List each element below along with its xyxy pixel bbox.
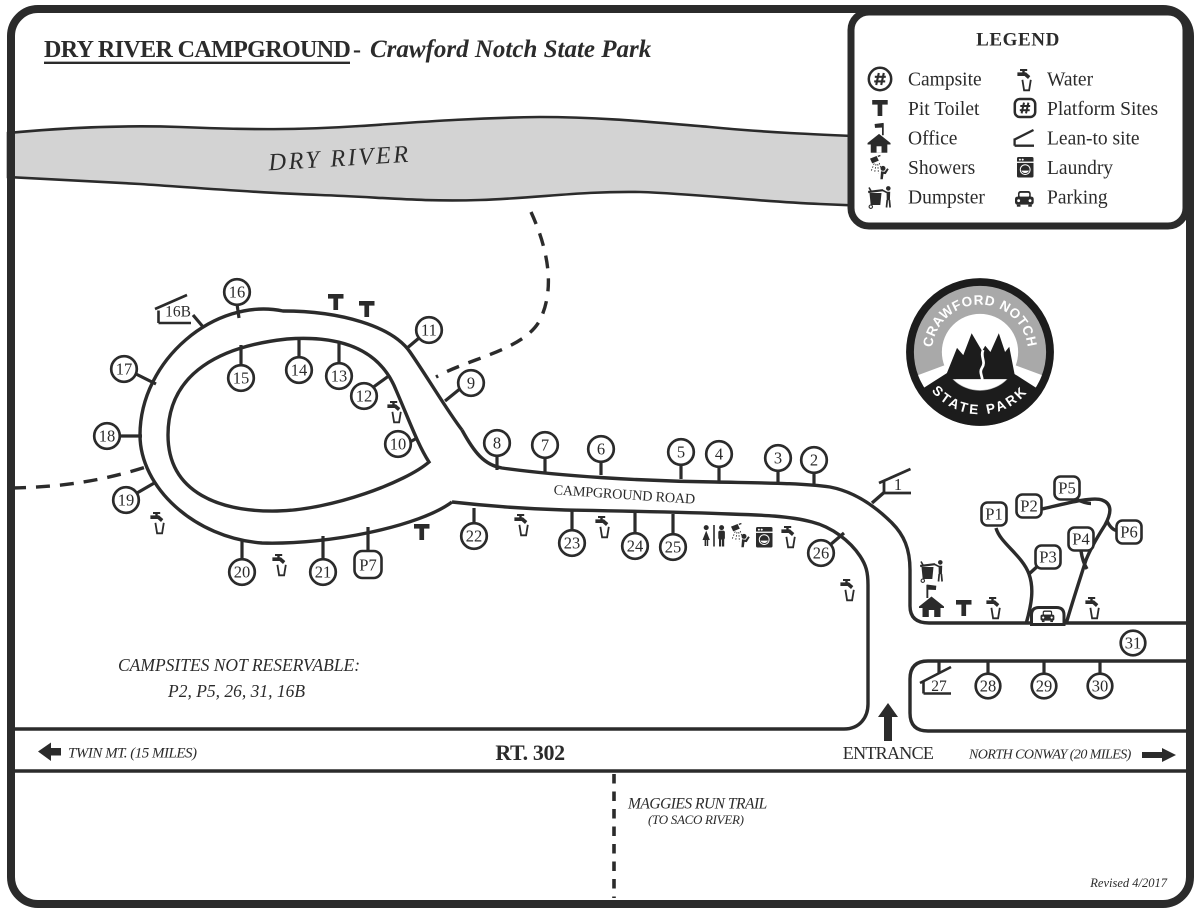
svg-text:27: 27 (931, 678, 947, 695)
svg-text:16: 16 (229, 283, 246, 302)
svg-text:Office: Office (908, 129, 957, 150)
svg-text:P6: P6 (1120, 523, 1137, 542)
svg-text:MAGGIES RUN TRAIL: MAGGIES RUN TRAIL (627, 796, 767, 813)
svg-text:Water: Water (1047, 70, 1094, 91)
svg-text:4: 4 (715, 445, 723, 464)
svg-text:6: 6 (597, 440, 605, 459)
svg-text:Laundry: Laundry (1047, 158, 1113, 179)
svg-text:Revised 4/2017: Revised 4/2017 (1089, 876, 1167, 890)
svg-text:26: 26 (813, 544, 830, 563)
svg-text:(TO SACO RIVER): (TO SACO RIVER) (648, 812, 744, 827)
svg-text:18: 18 (99, 427, 116, 446)
svg-text:P5: P5 (1058, 479, 1075, 498)
svg-text:22: 22 (466, 527, 483, 546)
svg-text:ENTRANCE: ENTRANCE (843, 743, 934, 763)
svg-text:24: 24 (627, 537, 644, 556)
svg-text:17: 17 (116, 360, 133, 379)
svg-text:Pit Toilet: Pit Toilet (908, 99, 980, 120)
svg-text:15: 15 (233, 369, 250, 388)
svg-text:12: 12 (356, 387, 373, 406)
svg-text:DRY RIVER CAMPGROUND: DRY RIVER CAMPGROUND (44, 37, 351, 63)
svg-text:P4: P4 (1072, 530, 1089, 549)
svg-text:-: - (353, 37, 361, 63)
svg-text:8: 8 (493, 434, 501, 453)
svg-text:29: 29 (1036, 677, 1053, 696)
svg-text:11: 11 (421, 321, 437, 340)
svg-text:14: 14 (291, 361, 308, 380)
svg-text:9: 9 (467, 374, 475, 393)
svg-text:5: 5 (677, 443, 685, 462)
svg-text:10: 10 (390, 435, 407, 454)
svg-text:P2: P2 (1020, 497, 1037, 516)
svg-text:Parking: Parking (1047, 188, 1108, 209)
svg-text:21: 21 (315, 563, 332, 582)
svg-text:Platform Sites: Platform Sites (1047, 99, 1158, 120)
svg-text:Showers: Showers (908, 158, 975, 179)
svg-text:Crawford Notch State Park: Crawford Notch State Park (370, 36, 652, 63)
svg-text:Campsite: Campsite (908, 70, 982, 91)
svg-text:19: 19 (118, 491, 135, 510)
svg-text:28: 28 (980, 677, 997, 696)
svg-text:31: 31 (1125, 634, 1142, 653)
svg-text:30: 30 (1092, 677, 1109, 696)
svg-text:P2, P5, 26, 31, 16B: P2, P5, 26, 31, 16B (167, 681, 305, 701)
svg-text:NORTH CONWAY (20 MILES): NORTH CONWAY (20 MILES) (968, 748, 1132, 763)
svg-text:13: 13 (331, 367, 348, 386)
svg-text:7: 7 (541, 436, 549, 455)
svg-text:CAMPSITES NOT RESERVABLE:: CAMPSITES NOT RESERVABLE: (118, 655, 360, 675)
svg-text:Lean-to site: Lean-to site (1047, 129, 1140, 150)
svg-text:RT. 302: RT. 302 (495, 740, 565, 765)
svg-text:TWIN MT. (15 MILES): TWIN MT. (15 MILES) (68, 746, 197, 762)
svg-text:P3: P3 (1039, 548, 1056, 567)
svg-text:Dumpster: Dumpster (908, 188, 985, 209)
svg-text:16B: 16B (165, 304, 191, 321)
svg-text:P7: P7 (359, 556, 376, 575)
svg-text:3: 3 (774, 449, 782, 468)
svg-text:1: 1 (894, 475, 902, 494)
svg-text:2: 2 (810, 451, 818, 470)
svg-text:23: 23 (564, 534, 581, 553)
svg-text:25: 25 (665, 538, 682, 557)
svg-text:20: 20 (234, 563, 251, 582)
svg-text:LEGEND: LEGEND (976, 30, 1060, 51)
svg-text:P1: P1 (985, 505, 1002, 524)
